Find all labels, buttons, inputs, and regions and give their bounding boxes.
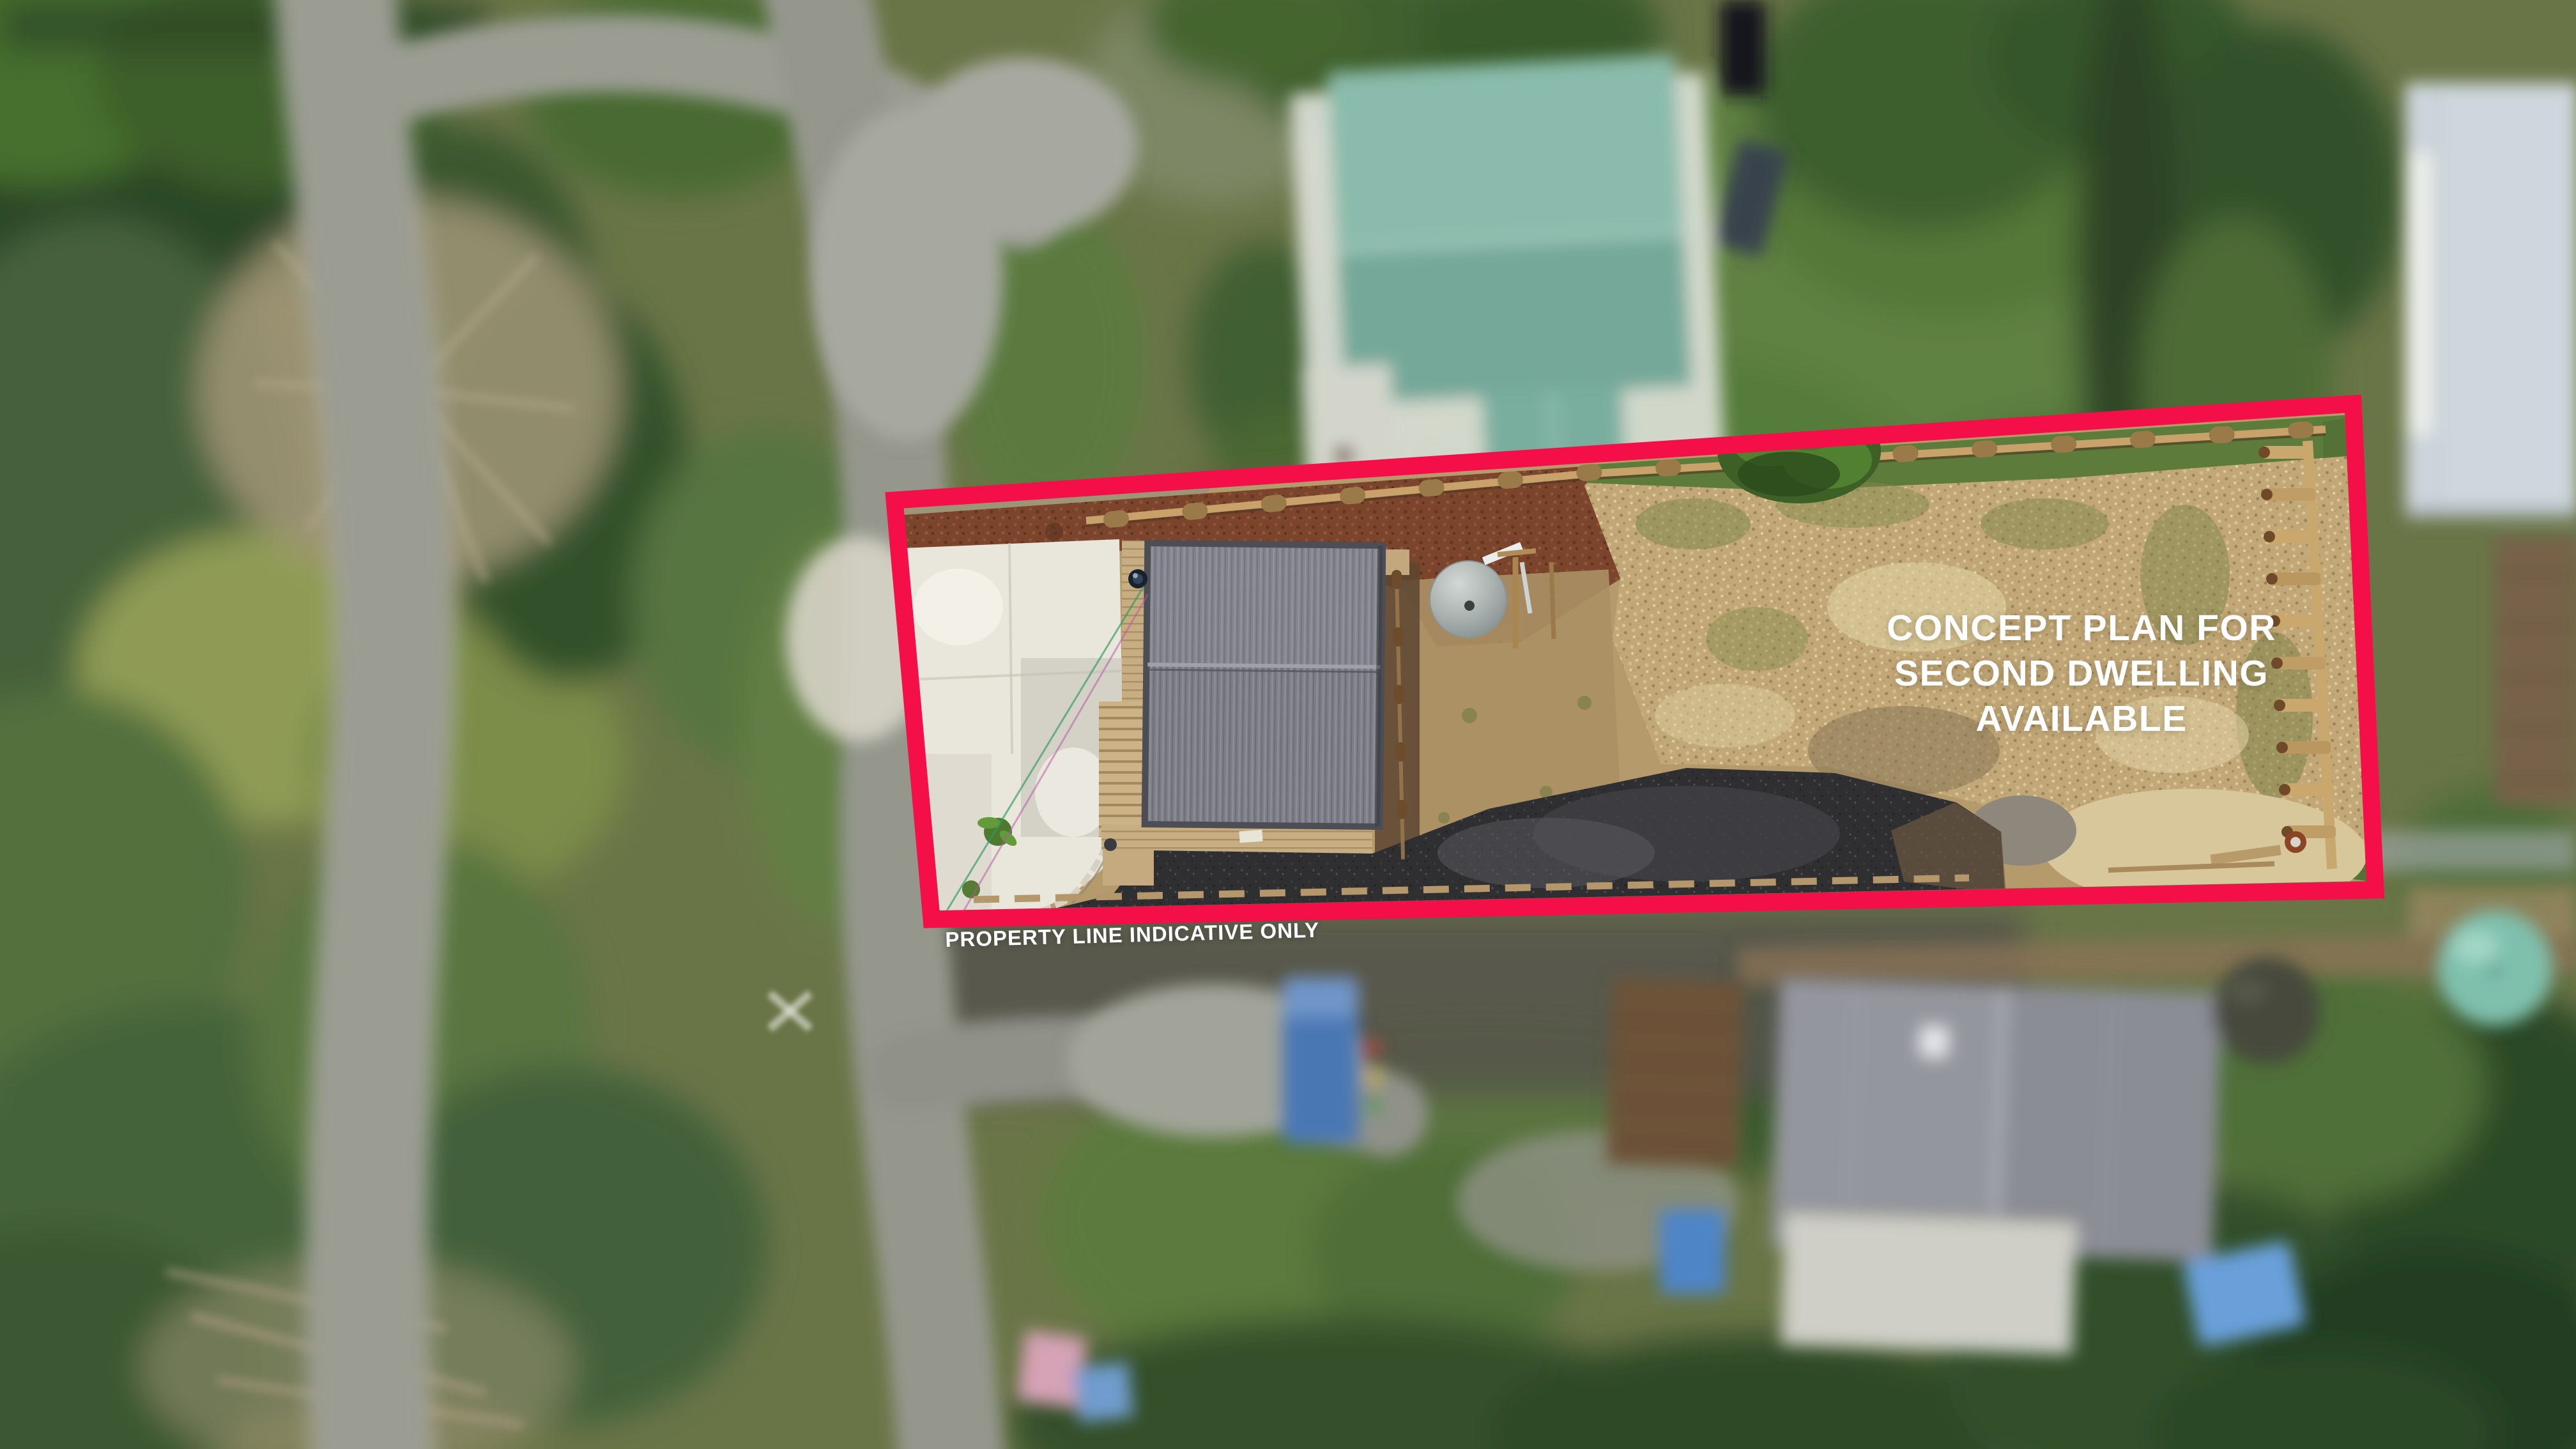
concrete-driveway	[902, 539, 1127, 916]
aerial-photo: CONCEPT PLAN FOR SECOND DWELLING AVAILAB…	[0, 0, 2576, 1449]
shed-building	[1145, 543, 1383, 827]
chimney-flue	[1128, 569, 1147, 588]
concept-plan-label: CONCEPT PLAN FOR SECOND DWELLING AVAILAB…	[1858, 606, 2305, 742]
roof-ridge	[1147, 664, 1380, 667]
deck-stairs	[1099, 701, 1146, 837]
